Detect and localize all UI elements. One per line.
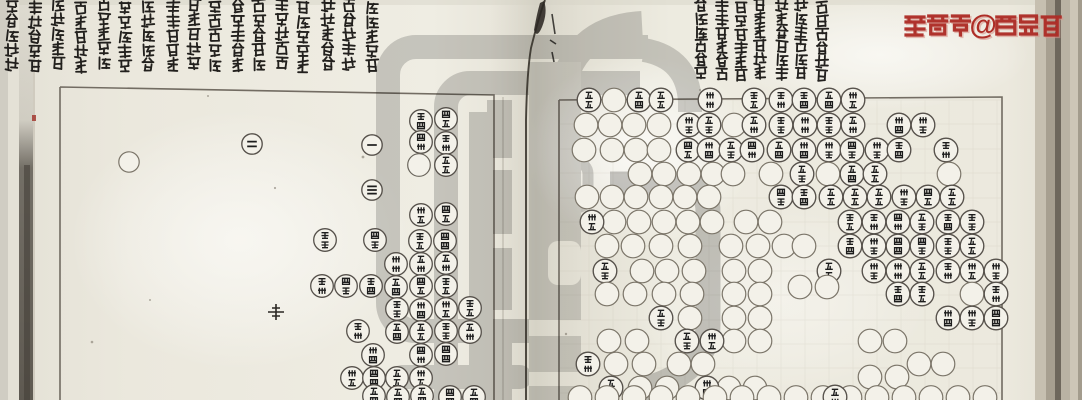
- svg-text:@: @: [969, 9, 996, 40]
